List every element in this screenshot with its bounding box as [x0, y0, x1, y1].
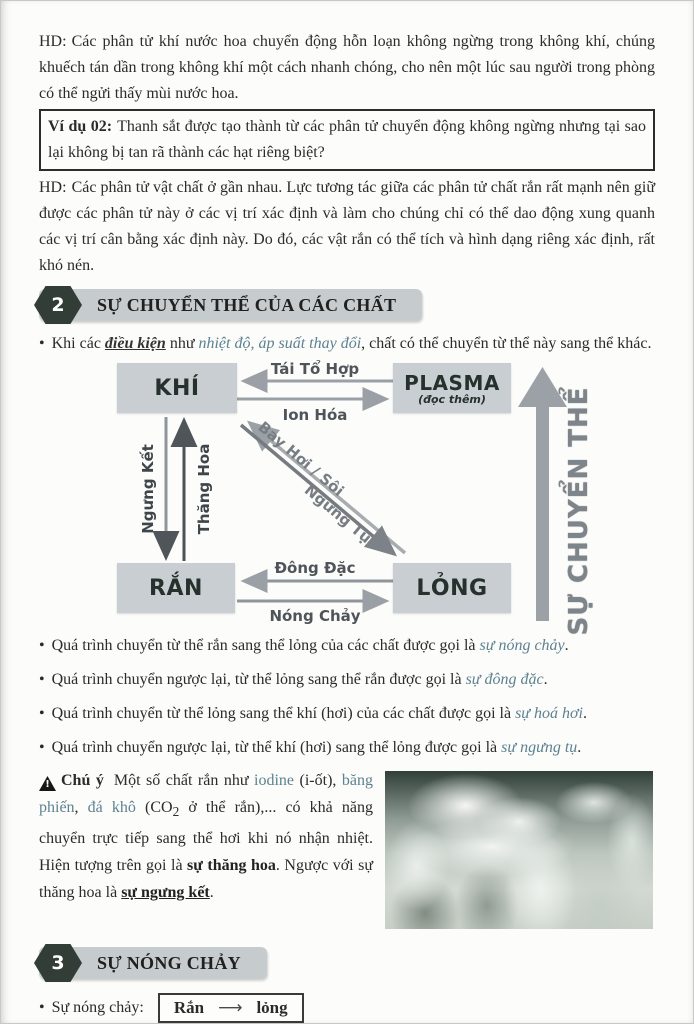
melting-formula-box: Rắn ⟶ lỏng — [158, 993, 304, 1023]
node-liquid: LỎNG — [393, 563, 511, 613]
section-bar: 3 SỰ NÓNG CHẢY — [39, 947, 267, 979]
node-solid-label: RẮN — [149, 576, 203, 601]
melting-label: Nóng Chảy — [269, 607, 360, 625]
note-text: !Chú ýMột số chất rắn như iodine (i-ốt),… — [39, 767, 373, 929]
bullet-dot: • — [39, 999, 45, 1017]
note-segment: (CO — [136, 799, 173, 816]
bullet-dot: • — [39, 637, 45, 654]
phase-bullet-3: •Quá trình chuyển từ thể lỏng sang thể k… — [39, 701, 655, 727]
bullet-dot: • — [39, 739, 45, 756]
phase-term: sự ngưng tụ — [501, 739, 577, 756]
freezing-label: Đông Đặc — [274, 559, 355, 577]
example-02-paragraph: Ví dụ 02:Thanh sắt được tạo thành từ các… — [48, 114, 646, 166]
section-title: SỰ CHUYỂN THỂ CỦA CÁC CHẤT — [97, 295, 396, 315]
example-text: Thanh sắt được tạo thành từ các phân tử … — [48, 118, 646, 161]
node-gas-label: KHÍ — [154, 376, 199, 401]
melting-from-state: Rắn — [174, 998, 204, 1018]
bullet-dot: • — [39, 705, 45, 722]
note-segment: . — [210, 884, 214, 901]
ionization-label: Ion Hóa — [283, 406, 348, 424]
hd-label: HD: — [39, 33, 67, 50]
melting-to-state: lỏng — [256, 998, 287, 1018]
hd-label: HD: — [39, 179, 67, 196]
warning-icon: ! — [39, 776, 56, 791]
intro-bullet: •Khi các điều kiện như nhiệt độ, áp suất… — [39, 331, 655, 357]
phase-term: sự nóng chảy — [479, 637, 564, 654]
dry-ice-photo — [385, 771, 653, 929]
note-segment: (i-ốt), — [294, 772, 342, 789]
substance-term: đá khô — [88, 799, 136, 816]
intro-text: , chất có thể chuyển từ thể này sang thể… — [361, 335, 651, 352]
section-number: 3 — [51, 947, 64, 979]
bullet-dot: • — [39, 671, 45, 688]
phase-bullet-4: •Quá trình chuyển ngược lại, từ thể khí … — [39, 735, 655, 761]
node-solid: RẮN — [117, 563, 235, 613]
document-page: HD:Các phân tử khí nước hoa chuyển động … — [0, 0, 694, 1024]
intro-text: như — [166, 335, 199, 352]
section-number-badge: 3 — [34, 944, 82, 982]
deposition-term: sự ngưng kết — [121, 884, 210, 901]
sublimation-label: Thăng Hoa — [195, 444, 213, 535]
bullet-dot: • — [39, 335, 45, 352]
paragraph-hd-1: HD:Các phân tử khí nước hoa chuyển động … — [39, 29, 655, 107]
bullet-text: Quá trình chuyển từ thể rắn sang thể lỏn… — [52, 637, 480, 654]
example-label: Ví dụ 02: — [48, 118, 112, 135]
axis-label: SỰ CHUYỂN THỂ — [564, 386, 594, 635]
bullet-text: . — [565, 637, 569, 654]
melting-label: Sự nóng chảy: — [52, 999, 144, 1017]
phase-change-diagram: KHÍ PLASMA (đọc thêm) RẮN LỎNG Tái Tổ Hợ… — [39, 361, 655, 625]
intro-text: Khi các — [52, 335, 105, 352]
bullet-text: . — [544, 671, 548, 688]
sublimation-term: sự thăng hoa — [187, 857, 276, 874]
axis-arrow-shaft — [536, 403, 549, 621]
section-bar: 2 SỰ CHUYỂN THỂ CỦA CÁC CHẤT — [39, 289, 422, 321]
phase-term: sự đông đặc — [466, 671, 544, 688]
section-header-3: 3 SỰ NÓNG CHẢY — [39, 945, 655, 981]
hd-text: Các phân tử khí nước hoa chuyển động hỗn… — [39, 33, 655, 102]
underlined-term: điều kiện — [105, 335, 166, 352]
accent-term: nhiệt độ, áp suất thay đổi — [198, 335, 361, 352]
substance-term: iodine — [254, 772, 294, 789]
page-content: HD:Các phân tử khí nước hoa chuyển động … — [39, 29, 655, 1024]
bullet-text: Quá trình chuyển ngược lại, từ thể lỏng … — [52, 671, 466, 688]
bullet-text: Quá trình chuyển ngược lại, từ thể khí (… — [52, 739, 502, 756]
node-gas: KHÍ — [117, 363, 237, 413]
note-segment: Một số chất rắn như — [114, 772, 254, 789]
hd-text: Các phân tử vật chất ở gần nhau. Lực tươ… — [39, 179, 655, 274]
deposition-label: Ngưng Kết — [139, 444, 157, 534]
recombination-label: Tái Tổ Hợp — [271, 360, 359, 378]
node-liquid-label: LỎNG — [416, 576, 487, 601]
bullet-text: . — [577, 739, 581, 756]
warning-exclamation: ! — [45, 780, 50, 791]
bullet-text: . — [583, 705, 587, 722]
melting-definition-line: • Sự nóng chảy: Rắn ⟶ lỏng — [39, 993, 655, 1023]
node-plasma: PLASMA (đọc thêm) — [393, 363, 511, 413]
section-header-2: 2 SỰ CHUYỂN THỂ CỦA CÁC CHẤT — [39, 287, 655, 323]
section-number-badge: 2 — [34, 286, 82, 324]
phase-bullet-2: •Quá trình chuyển ngược lại, từ thể lỏng… — [39, 667, 655, 693]
phase-bullet-1: •Quá trình chuyển từ thể rắn sang thể lỏ… — [39, 633, 655, 659]
node-plasma-sublabel: (đọc thêm) — [418, 393, 486, 406]
node-plasma-label: PLASMA — [404, 371, 500, 395]
note-block: !Chú ýMột số chất rắn như iodine (i-ốt),… — [39, 767, 655, 929]
note-label: Chú ý — [61, 772, 104, 789]
note-segment: , — [75, 799, 88, 816]
axis-arrow-head — [518, 367, 567, 407]
paragraph-hd-2: HD:Các phân tử vật chất ở gần nhau. Lực … — [39, 175, 655, 279]
section-number: 2 — [51, 289, 64, 321]
example-02-box: Ví dụ 02:Thanh sắt được tạo thành từ các… — [39, 109, 655, 171]
section-title: SỰ NÓNG CHẢY — [97, 953, 241, 973]
right-arrow-icon: ⟶ — [218, 998, 242, 1018]
bullet-text: Quá trình chuyển từ thể lỏng sang thể kh… — [52, 705, 515, 722]
phase-term: sự hoá hơi — [515, 705, 583, 722]
